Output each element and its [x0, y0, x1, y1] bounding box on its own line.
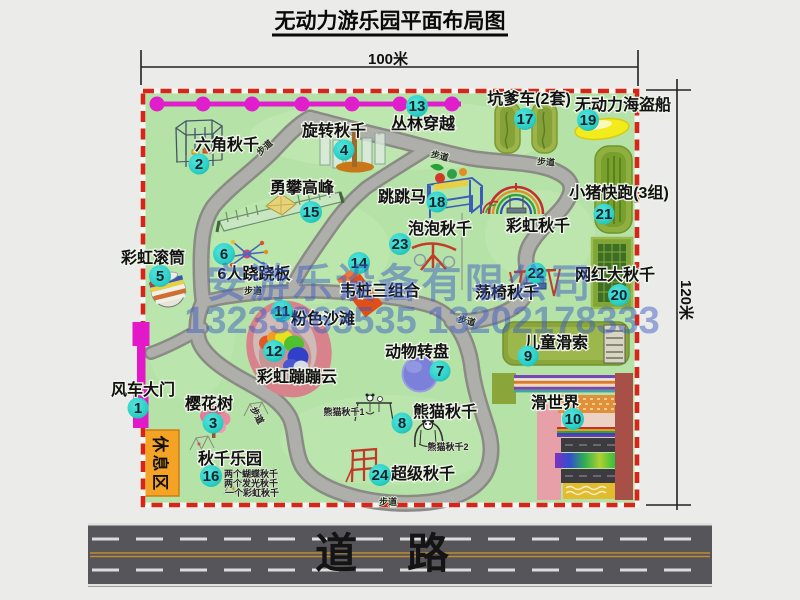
- svg-text:樱花树: 樱花树: [185, 394, 233, 413]
- svg-text:小猪快跑(3组): 小猪快跑(3组): [569, 183, 669, 202]
- svg-text:12: 12: [266, 343, 283, 360]
- svg-text:彩虹秋千: 彩虹秋千: [505, 216, 570, 235]
- svg-text:勇攀高峰: 勇攀高峰: [270, 178, 335, 197]
- svg-text:跳跳马: 跳跳马: [378, 187, 426, 206]
- svg-text:区: 区: [151, 474, 170, 491]
- svg-text:步道: 步道: [379, 496, 397, 507]
- svg-text:无动力游乐园平面布局图: 无动力游乐园平面布局图: [275, 9, 506, 33]
- svg-text:13233863535 13202178333: 13233863535 13202178333: [184, 300, 660, 342]
- svg-text:23: 23: [392, 236, 409, 253]
- svg-text:超级秋千: 超级秋千: [390, 464, 455, 483]
- svg-text:9: 9: [524, 348, 532, 365]
- svg-text:一个彩虹秋千: 一个彩虹秋千: [225, 487, 279, 498]
- svg-text:19: 19: [580, 112, 597, 129]
- svg-text:两个蝴蝶秋千: 两个蝴蝶秋千: [224, 468, 278, 479]
- svg-text:丛林穿越: 丛林穿越: [391, 114, 456, 133]
- svg-text:17: 17: [517, 111, 534, 128]
- svg-text:15: 15: [303, 204, 320, 221]
- svg-text:息: 息: [151, 455, 171, 472]
- svg-text:熊猫秋千: 熊猫秋千: [413, 402, 477, 421]
- svg-text:10: 10: [565, 411, 582, 428]
- svg-text:道路: 道路: [315, 530, 499, 577]
- svg-text:两个发光秋千: 两个发光秋千: [224, 478, 278, 489]
- svg-text:秋千乐园: 秋千乐园: [198, 449, 262, 468]
- svg-text:泡泡秋千: 泡泡秋千: [408, 219, 472, 238]
- svg-text:4: 4: [340, 142, 349, 159]
- svg-text:熊猫秋千2: 熊猫秋千2: [427, 441, 468, 452]
- svg-text:24: 24: [372, 467, 389, 484]
- svg-text:休: 休: [151, 435, 171, 453]
- svg-text:风车大门: 风车大门: [111, 380, 175, 399]
- svg-text:8: 8: [398, 415, 406, 432]
- svg-text:动物转盘: 动物转盘: [385, 342, 449, 361]
- svg-text:21: 21: [596, 206, 613, 223]
- svg-text:2: 2: [195, 156, 203, 173]
- svg-text:1: 1: [134, 400, 142, 417]
- svg-text:5: 5: [156, 268, 164, 285]
- svg-text:六角秋千: 六角秋千: [195, 135, 259, 154]
- svg-text:120米: 120米: [677, 280, 695, 321]
- svg-text:彩虹滚筒: 彩虹滚筒: [120, 248, 185, 267]
- svg-text:坑爹车(2套): 坑爹车(2套): [487, 89, 571, 108]
- svg-text:3: 3: [209, 415, 217, 432]
- svg-text:熊猫秋千1: 熊猫秋千1: [323, 406, 364, 417]
- svg-text:6: 6: [220, 246, 228, 263]
- svg-text:彩虹蹦蹦云: 彩虹蹦蹦云: [256, 367, 337, 386]
- svg-text:18: 18: [429, 194, 446, 211]
- svg-text:16: 16: [203, 468, 220, 485]
- svg-text:100米: 100米: [368, 50, 409, 68]
- svg-text:13: 13: [409, 98, 426, 115]
- svg-text:7: 7: [436, 363, 444, 380]
- svg-text:步道: 步道: [537, 155, 556, 167]
- svg-text:旋转秋千: 旋转秋千: [301, 121, 366, 140]
